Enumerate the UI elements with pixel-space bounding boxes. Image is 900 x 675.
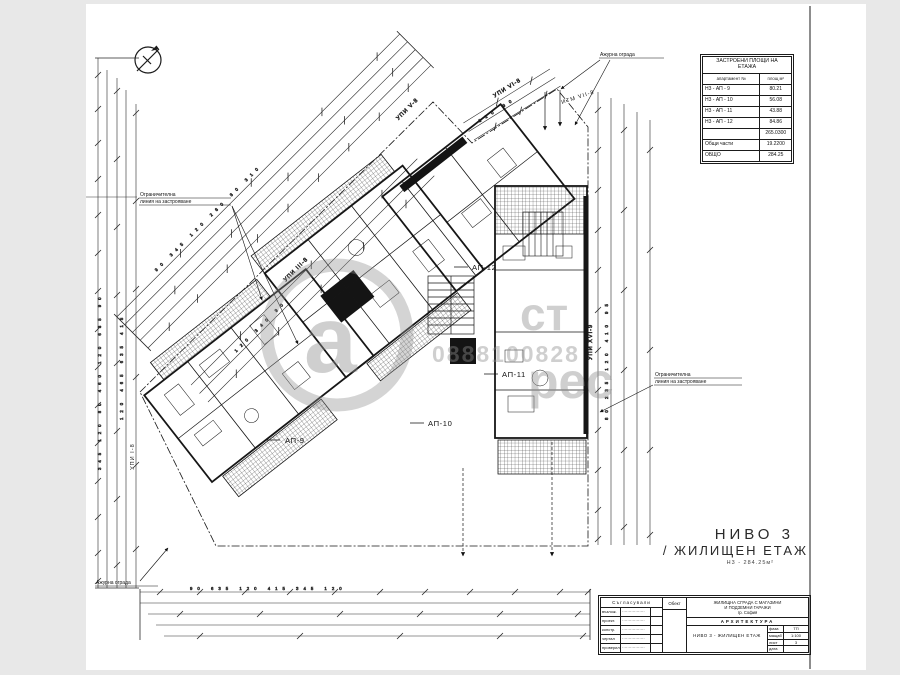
annotation-fence-bottom: Ажурна ограда: [95, 548, 168, 586]
approval-name: ·················: [621, 617, 651, 625]
title-block-object: Обект: [663, 598, 687, 652]
annotation-fence-top: Ажурна ограда: [561, 52, 664, 125]
approvals-row: проверил·················: [601, 644, 662, 652]
project-line3: гр. София: [687, 610, 808, 615]
table-row: 265.0300: [703, 129, 792, 140]
approvals-row: констр.·················: [601, 626, 662, 635]
table-row: ОБЩО284.25: [703, 151, 792, 162]
area-cell-value: 80.21: [760, 85, 792, 96]
approvals-row: възлож.·················: [601, 608, 662, 617]
area-cell-value: 43.88: [760, 107, 792, 118]
drawing-title: НИВО 3 / ЖИЛИЩЕН ЕТАЖ Н3 - 284.25м²: [640, 526, 808, 566]
meta-key: дата: [768, 646, 784, 652]
approval-signature: [651, 626, 662, 634]
annotation-text: линия на застрояване: [140, 199, 192, 205]
area-cell-value: 265.0300: [760, 129, 792, 140]
watermark-word-bottom: рес: [528, 353, 614, 409]
drawing-title-subtitle: Н3 - 284.25м²: [640, 560, 808, 566]
table-row: Н3 - АП - 980.21: [703, 85, 792, 96]
drawing-canvas: 345 120 80 460 120 635 90 120 465 635 41…: [0, 0, 900, 675]
upi-left-label: УПИ І-8: [130, 443, 136, 470]
approval-name: ·················: [621, 635, 651, 643]
dim-numbers-left-1: 345 120 80 460 120 635 90: [97, 292, 102, 470]
apartment-label-ap-9: АП-9: [285, 436, 305, 445]
dimension-chain-left: 345 120 80 460 120 635 90 120 465 635 41…: [95, 58, 139, 588]
area-cell-label: Н3 - АП - 10: [703, 96, 760, 107]
itm-label: ИТМ VІІ-8: [561, 90, 596, 106]
meta-cell: дата: [768, 646, 808, 652]
table-row: Н3 - АП - 1143.88: [703, 107, 792, 118]
approval-role: възлож.: [601, 608, 621, 616]
dim-numbers-top-right: 120 90: [477, 96, 516, 123]
meta-value: [784, 646, 808, 652]
table-row: Общи части19.2200: [703, 140, 792, 151]
area-cell-value: 19.2200: [760, 140, 792, 151]
area-table: ЗАСТРОЕНИ ПЛОЩИ НА ЕТАЖА апартамент № пл…: [702, 56, 792, 162]
approval-name: ·················: [621, 608, 651, 616]
area-table-col-value: площ м²: [760, 74, 792, 85]
approval-role: проект.: [601, 617, 621, 625]
approval-signature: [651, 608, 662, 616]
dim-numbers-top: 90 345 120 260 80 310: [154, 163, 263, 272]
meta-value: 3: [784, 640, 808, 646]
title-block-meta-cells: фазаТП мащаб1:100 лист3 дата: [768, 626, 808, 652]
meta-cell: лист3: [768, 640, 808, 647]
watermark: а ст 0888100828 рес: [267, 265, 614, 409]
meta-key: фаза: [768, 626, 784, 632]
watermark-word-top: ст: [520, 288, 568, 340]
title-block-approvals: Съгласували възлож.················· про…: [601, 598, 663, 652]
title-block: Съгласували възлож.················· про…: [600, 597, 809, 653]
title-block-project: ЖИЛИЩНА СГРАДА С МАГАЗИНИ И ПОДЗЕМНИ ГАР…: [687, 598, 808, 652]
dim-numbers-left-2: 120 465 635 415: [119, 313, 124, 420]
approval-signature: [651, 617, 662, 625]
north-arrow-icon: [135, 46, 161, 74]
annotation-text: линия на застрояване: [655, 379, 707, 385]
approval-role: чертал: [601, 635, 621, 643]
approval-name: ·················: [621, 644, 651, 652]
area-cell-label: Н3 - АП - 9: [703, 85, 760, 96]
table-row: Н3 - АП - 1284.86: [703, 118, 792, 129]
upi-top-right-label: УПИ VІ-8: [493, 78, 523, 100]
area-cell-label: Н3 - АП - 11: [703, 107, 760, 118]
area-table-col-label: апартамент №: [703, 74, 760, 85]
area-table-title-line2: ЕТАЖА: [738, 64, 756, 70]
meta-cell: мащаб1:100: [768, 633, 808, 640]
project-description: ЖИЛИЩНА СГРАДА С МАГАЗИНИ И ПОДЗЕМНИ ГАР…: [687, 598, 808, 618]
area-table-title: ЗАСТРОЕНИ ПЛОЩИ НА ЕТАЖА: [703, 57, 792, 74]
drawing-title-line2: / ЖИЛИЩЕН ЕТАЖ: [640, 543, 808, 558]
watermark-logo-letter: а: [304, 287, 358, 393]
area-cell-label: Общи части: [703, 140, 760, 151]
apartment-label-ap-12: АП-12: [472, 263, 496, 272]
area-cell-value: 284.25: [760, 151, 792, 162]
meta-value: 1:100: [784, 633, 808, 639]
dimension-chain-right: 80 235 120 410 95 УПИ ХVІ-9: [588, 92, 653, 545]
approvals-row: проект.·················: [601, 617, 662, 626]
dimension-chain-top-right: 120 90 УПИ VІ-8: [459, 61, 562, 142]
approval-signature: [651, 635, 662, 643]
annotation-text: Ажурна ограда: [96, 580, 131, 586]
area-cell-label: [703, 129, 760, 140]
dimension-chain-bottom: 90 635 120 415 345 120: [140, 586, 591, 640]
approval-role: констр.: [601, 626, 621, 634]
annotation-text: Ограничителна: [140, 192, 176, 198]
object-label: Обект: [663, 598, 686, 610]
area-cell-value: 84.86: [760, 118, 792, 129]
area-cell-label: ОБЩО: [703, 151, 760, 162]
approvals-row: чертал·················: [601, 635, 662, 644]
approval-name: ·················: [621, 626, 651, 634]
area-cell-label: Н3 - АП - 12: [703, 118, 760, 129]
meta-value: ТП: [784, 626, 808, 632]
title-block-bottom: НИВО 3 - ЖИЛИЩЕН ЕТАЖ фазаТП мащаб1:100 …: [687, 626, 808, 652]
approval-signature: [651, 644, 662, 652]
meta-cell: фазаТП: [768, 626, 808, 633]
annotation-restriction-right: Ограничителна линия на застрояване: [600, 372, 742, 412]
dim-numbers-bottom: 90 635 120 415 345 120: [190, 586, 347, 591]
meta-key: мащаб: [768, 633, 784, 639]
approvals-header: Съгласували: [601, 598, 662, 608]
annotation-text: Ажурна ограда: [600, 52, 635, 58]
apartment-label-ap-10: АП-10: [428, 419, 452, 428]
meta-key: лист: [768, 640, 784, 646]
approval-role: проверил: [601, 644, 621, 652]
drawing-name: НИВО 3 - ЖИЛИЩЕН ЕТАЖ: [687, 626, 768, 652]
table-row: Н3 - АП - 1056.08: [703, 96, 792, 107]
area-cell-value: 56.08: [760, 96, 792, 107]
drawing-title-line1: НИВО 3: [640, 526, 808, 543]
annotation-text: Ограничителна: [655, 372, 691, 378]
part-label: АРХИТЕКТУРА: [687, 618, 808, 626]
apartment-label-ap-11: АП-11: [502, 370, 526, 379]
